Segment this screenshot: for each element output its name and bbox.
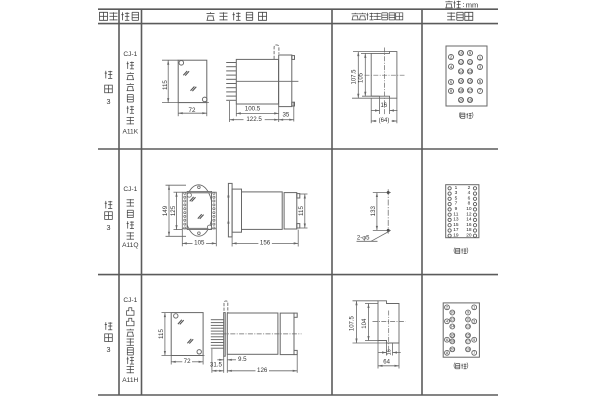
svg-text:5: 5 [473,338,475,342]
svg-text:16: 16 [387,349,393,355]
svg-text:12: 12 [459,60,464,65]
svg-text:14: 14 [459,69,464,74]
svg-text:14: 14 [466,217,472,223]
svg-text:20: 20 [466,232,472,238]
svg-text:13: 13 [466,325,470,329]
svg-text:19: 19 [466,348,470,352]
svg-text:2: 2 [446,306,448,310]
svg-text:16: 16 [459,79,464,84]
svg-text:20: 20 [450,348,454,352]
svg-text:A11K: A11K [122,128,138,135]
svg-text:17: 17 [466,340,470,344]
svg-text:10: 10 [466,206,472,212]
svg-text:2-φ5: 2-φ5 [357,236,370,242]
svg-text:6: 6 [446,338,448,342]
svg-text:mm: mm [466,0,479,9]
svg-text:133: 133 [370,205,377,216]
svg-text:9: 9 [467,311,469,315]
svg-text:107.5: 107.5 [350,315,356,331]
svg-text:3: 3 [107,97,111,106]
svg-text:8: 8 [468,201,471,207]
svg-text:18: 18 [466,227,472,233]
svg-text:20: 20 [459,98,464,103]
svg-text:CJ-1: CJ-1 [123,297,137,304]
svg-text:19: 19 [468,98,473,103]
svg-text:72: 72 [189,107,196,114]
svg-text:11: 11 [466,318,470,322]
svg-text:CJ-1: CJ-1 [123,186,137,193]
svg-text:18: 18 [450,340,454,344]
svg-text:13: 13 [468,69,473,74]
svg-text:35: 35 [282,112,289,119]
svg-text:15: 15 [453,222,459,228]
svg-text:1: 1 [473,306,475,310]
svg-text:12: 12 [450,318,454,322]
svg-text:3: 3 [107,223,111,232]
svg-text:): ) [467,248,469,254]
svg-text:A11H: A11H [122,377,138,384]
svg-text:17: 17 [453,227,459,233]
svg-text:64: 64 [383,360,390,366]
svg-text:1: 1 [455,185,458,191]
svg-text:11: 11 [453,211,458,217]
svg-text:18: 18 [459,88,464,93]
svg-text:105: 105 [359,72,365,83]
svg-text:115: 115 [298,206,305,216]
svg-text:9.5: 9.5 [238,356,247,363]
svg-text:149: 149 [162,205,169,216]
svg-text:12: 12 [466,211,472,217]
svg-text:5: 5 [455,195,458,201]
svg-text:31.5: 31.5 [210,362,223,369]
svg-text:): ) [467,363,469,369]
svg-text:3: 3 [107,345,111,354]
svg-text:13: 13 [453,217,459,223]
svg-text::: : [462,0,464,9]
svg-text:105: 105 [194,240,205,247]
svg-text:6: 6 [468,195,471,201]
svg-text:16: 16 [380,103,387,109]
svg-text:19: 19 [453,232,459,238]
svg-text:156: 156 [260,240,271,247]
svg-text:10: 10 [450,311,454,315]
svg-text:11: 11 [468,60,473,65]
svg-text:A11Q: A11Q [122,242,138,249]
svg-text:16: 16 [466,222,472,228]
svg-text:(64): (64) [379,118,390,124]
svg-text:4: 4 [446,320,448,324]
svg-text:7: 7 [455,201,458,207]
svg-text:115: 115 [158,329,165,339]
svg-text:14: 14 [450,325,454,329]
svg-text:15: 15 [468,79,473,84]
svg-text:122.5: 122.5 [246,116,262,123]
svg-text:3: 3 [473,320,475,324]
svg-text:7: 7 [473,351,475,355]
svg-text:9: 9 [455,206,458,212]
svg-text:(: ( [453,248,455,254]
svg-text:CJ-1: CJ-1 [123,51,137,58]
svg-text:10: 10 [459,51,464,56]
svg-text:125: 125 [170,205,177,216]
svg-text:(: ( [453,363,455,369]
svg-text:3: 3 [455,190,458,196]
svg-text:17: 17 [468,88,473,93]
svg-text:4: 4 [468,190,471,196]
svg-text:115: 115 [162,80,169,90]
svg-text:16: 16 [450,334,454,338]
svg-text:126: 126 [257,367,268,374]
svg-text:100.5: 100.5 [245,106,261,113]
svg-text:8: 8 [446,351,448,355]
svg-text:72: 72 [184,358,191,365]
svg-text:): ) [472,113,474,119]
svg-text:104: 104 [362,318,368,329]
svg-text:107.5: 107.5 [351,69,357,85]
svg-text:15: 15 [466,334,470,338]
svg-text:2: 2 [468,185,471,191]
